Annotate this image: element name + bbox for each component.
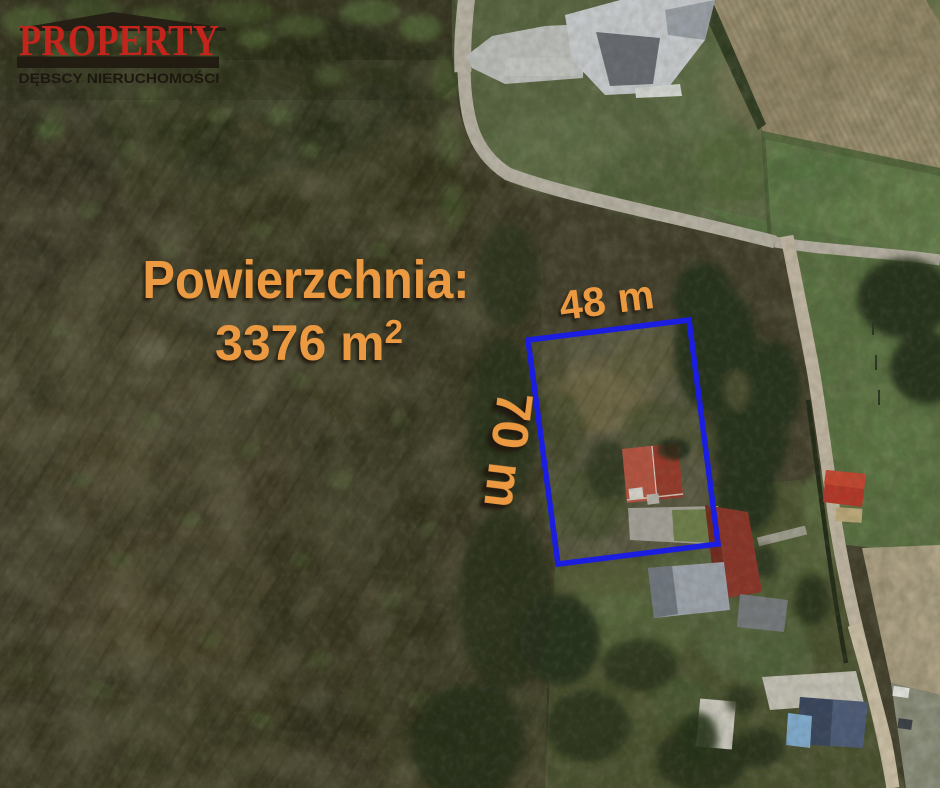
svg-text:Powierzchnia:: Powierzchnia: — [143, 250, 470, 310]
svg-text:3376 m2: 3376 m2 — [215, 313, 403, 371]
svg-text:DĘBSCY NIERUCHOMOŚCI: DĘBSCY NIERUCHOMOŚCI — [19, 69, 220, 86]
